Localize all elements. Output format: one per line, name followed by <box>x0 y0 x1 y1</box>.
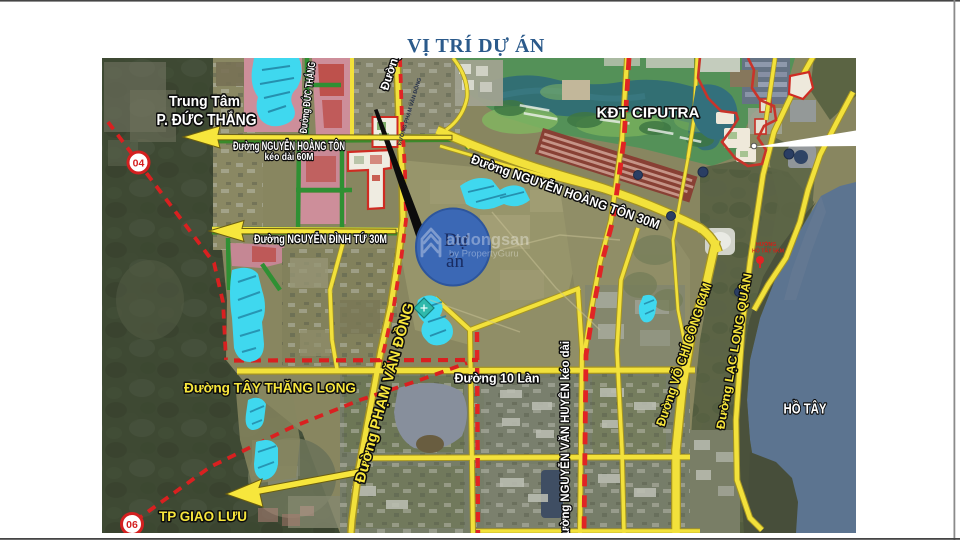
svg-text:P. ĐỨC THẮNG: P. ĐỨC THẮNG <box>157 110 257 129</box>
svg-text:HƯỚNG: HƯỚNG <box>756 240 776 248</box>
svg-text:HỒ TÂY: HỒ TÂY <box>784 400 827 418</box>
svg-text:Đường NGUYỄN VĂN HUYÊN kéo dài: Đường NGUYỄN VĂN HUYÊN kéo dài <box>557 341 572 543</box>
svg-text:Đường TÂY THĂNG LONG: Đường TÂY THĂNG LONG <box>184 379 356 396</box>
svg-text:04: 04 <box>133 158 145 170</box>
svg-text:Trung Tâm: Trung Tâm <box>169 93 240 110</box>
svg-text:06: 06 <box>126 519 138 531</box>
svg-text:Đường NGUYỄN ĐÌNH TỨ 30M: Đường NGUYỄN ĐÌNH TỨ 30M <box>254 233 387 246</box>
svg-text:Đường 10 Làn: Đường 10 Làn <box>455 372 540 386</box>
svg-text:by PropertyGuru: by PropertyGuru <box>449 249 519 260</box>
svg-text:atdongsan: atdongsan <box>446 231 529 249</box>
svg-text:HỒ TÂY 5KM: HỒ TÂY 5KM <box>752 248 784 255</box>
svg-text:KĐT CIPUTRA: KĐT CIPUTRA <box>597 106 701 122</box>
svg-text:kéo dài 60M: kéo dài 60M <box>265 151 314 163</box>
svg-text:TP GIAO LƯU: TP GIAO LƯU <box>159 508 247 524</box>
svg-text:VỊ TRÍ DỰ ÁN: VỊ TRÍ DỰ ÁN <box>407 34 545 57</box>
